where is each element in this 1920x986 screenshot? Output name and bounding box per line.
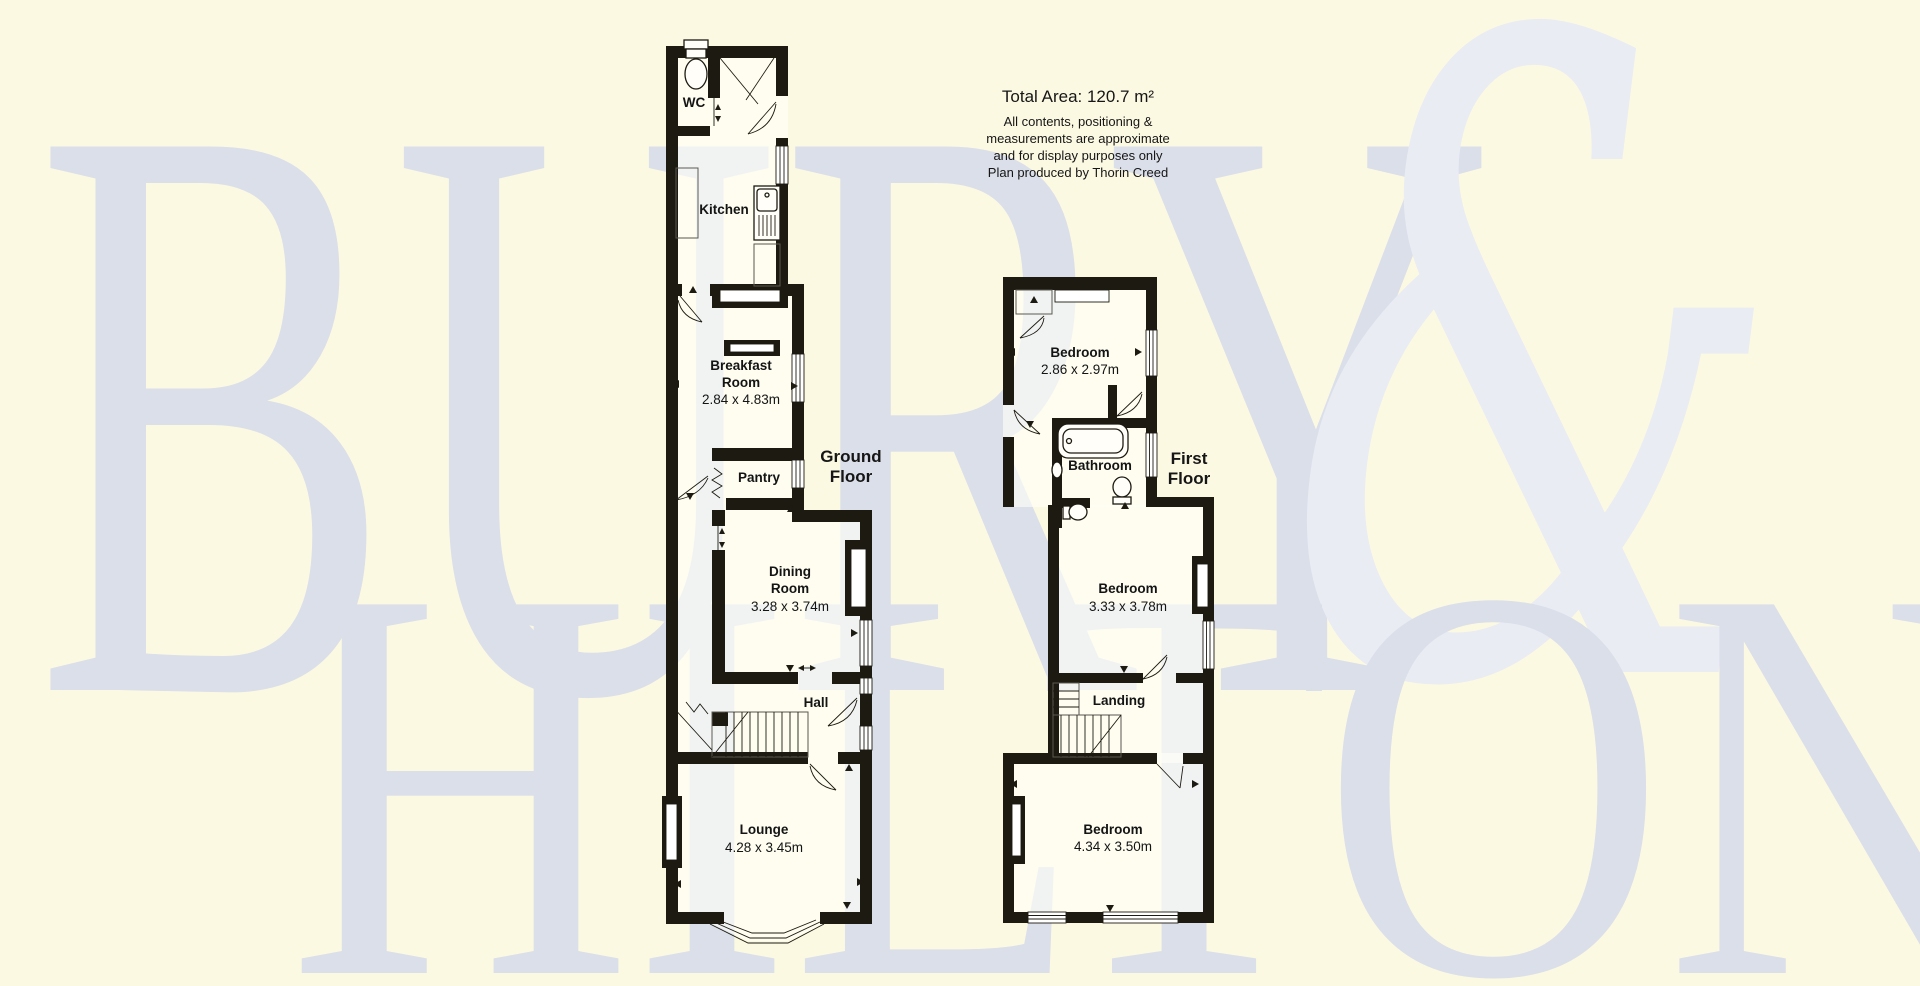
ground-floor-title: Ground Floor <box>809 447 893 487</box>
first-floor-title-line1: First <box>1147 449 1231 469</box>
hall-label: Hall <box>804 695 829 710</box>
ground-floor-title-line1: Ground <box>809 447 893 467</box>
ground-floor-rooms <box>666 46 872 941</box>
ground-floor-plan: WC Kitchen Breakfast Room 2.84 x 4.83m P… <box>650 30 890 955</box>
bedroom-middle-label: Bedroom <box>1098 581 1157 596</box>
ground-floor-title-line2: Floor <box>809 467 893 487</box>
kitchen-label: Kitchen <box>699 202 749 217</box>
dining-room-label-2: Room <box>771 581 809 596</box>
toilet-icon <box>1113 477 1131 504</box>
dining-room-label: Dining <box>769 564 811 579</box>
lounge-label: Lounge <box>740 822 789 837</box>
dining-room-dims: 3.28 x 3.74m <box>751 599 829 614</box>
wc-toilet-icon <box>684 40 708 89</box>
bathtub-icon <box>1058 424 1128 458</box>
bedroom-back-side-window <box>1008 796 1025 864</box>
first-floor-title-line2: Floor <box>1147 469 1231 489</box>
landing-label: Landing <box>1093 693 1146 708</box>
hall-window-lower <box>860 726 872 750</box>
bedroom-back-rear-window-2 <box>1103 912 1178 923</box>
breakfast-window <box>792 354 804 402</box>
hall-window-upper <box>860 678 872 694</box>
bathroom-label: Bathroom <box>1068 458 1132 473</box>
basin-icon <box>1052 462 1062 478</box>
bedroom-front-dims: 2.86 x 2.97m <box>1041 362 1119 377</box>
kitchen-window <box>776 146 788 184</box>
pantry-window <box>792 460 804 488</box>
bedroom-back-dims: 4.34 x 3.50m <box>1074 839 1152 854</box>
pantry-label: Pantry <box>738 470 781 485</box>
bedroom-back-rear-window-1 <box>1028 912 1066 923</box>
lounge-side-window <box>662 796 682 868</box>
first-floor-plan: Bedroom 2.86 x 2.97m Bathroom Bedroom 3.… <box>995 270 1220 930</box>
bedroom-front-window <box>1146 330 1157 376</box>
floorplan-page: { "page": {"background": "#FCF9E3"}, "wa… <box>0 0 1920 986</box>
breakfast-room-label-2: Room <box>722 375 760 390</box>
breakfast-room-dims: 2.84 x 4.83m <box>702 392 780 407</box>
disclaimer-line: measurements are approximate <box>938 130 1218 147</box>
dining-window <box>860 620 872 666</box>
landing-toilet-icon <box>1063 504 1087 520</box>
bedroom-middle-window <box>1203 621 1214 669</box>
first-floor-title: First Floor <box>1147 449 1231 489</box>
wc-label: WC <box>683 95 706 110</box>
disclaimer-line: All contents, positioning & <box>938 113 1218 130</box>
bedroom-front-label: Bedroom <box>1050 345 1109 360</box>
total-area-text: Total Area: 120.7 m² <box>938 86 1218 108</box>
disclaimer-line: Plan produced by Thorin Creed <box>938 164 1218 181</box>
breakfast-room-label: Breakfast <box>710 358 772 373</box>
bedroom-back-label: Bedroom <box>1083 822 1142 837</box>
disclaimer-line: and for display purposes only <box>938 147 1218 164</box>
bedroom-middle-dims: 3.33 x 3.78m <box>1089 599 1167 614</box>
lounge-dims: 4.28 x 3.45m <box>725 840 803 855</box>
area-annotation: Total Area: 120.7 m² All contents, posit… <box>938 86 1218 181</box>
